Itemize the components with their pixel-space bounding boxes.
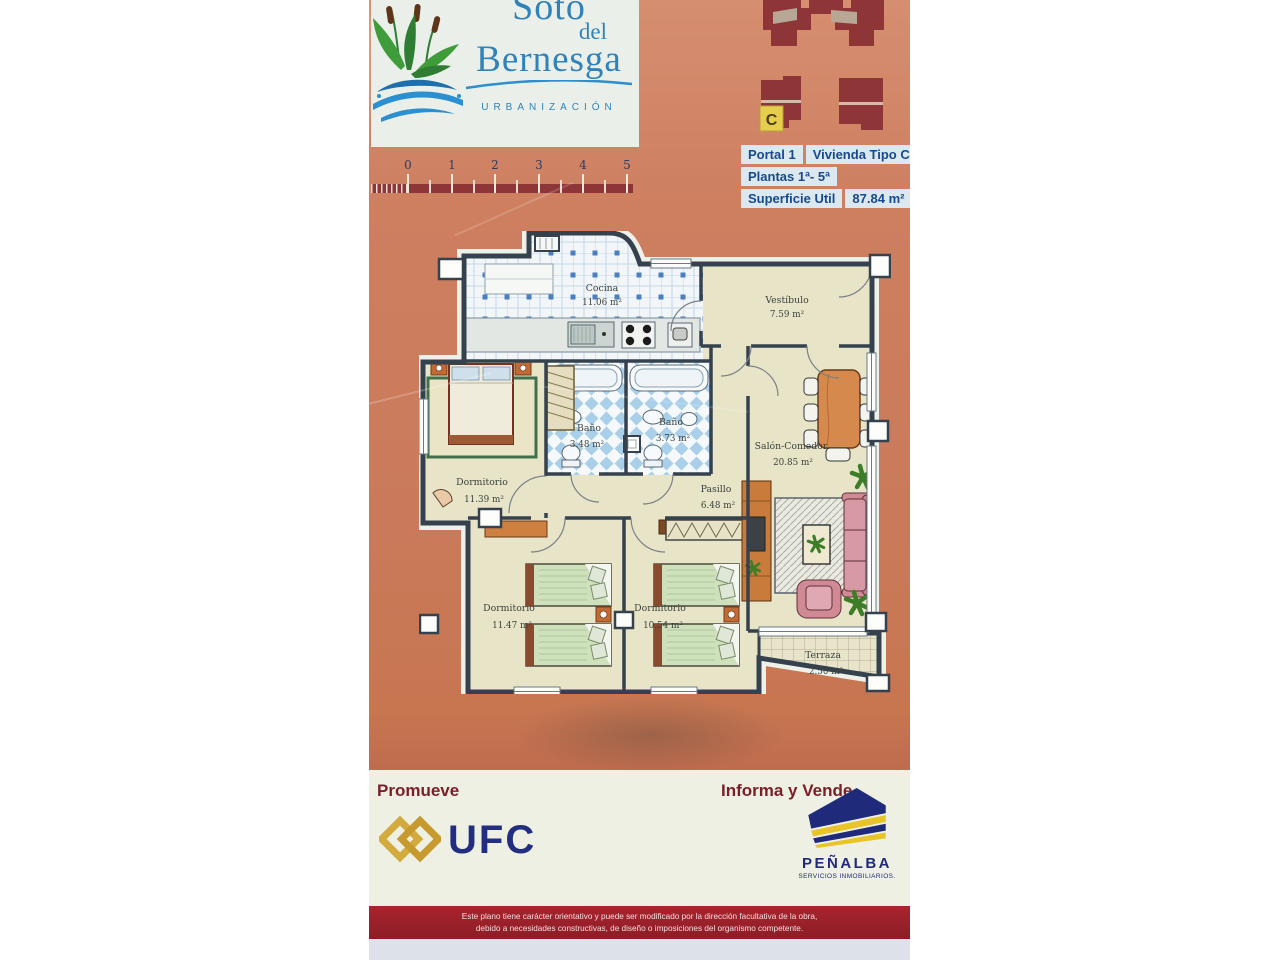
block-gap — [839, 102, 883, 105]
logo-text: Soto del Bernesga URBANIZACIÓN — [463, 0, 635, 113]
brochure-photo: Soto del Bernesga URBANIZACIÓN C Portal … — [369, 0, 910, 960]
ufc-diamonds-icon — [379, 812, 441, 868]
room-label: Dormitorio — [483, 603, 535, 614]
superficie-label-chip: Superficie Util — [741, 189, 842, 208]
scale-tick-3: 3 — [532, 158, 546, 172]
room-area: 6.48 m² — [701, 501, 735, 511]
room-label: Dormitorio — [456, 477, 508, 488]
room-area: 11.47 m² — [492, 621, 532, 631]
promueve-label: Promueve — [377, 781, 459, 801]
room-area: 2.50 m² — [809, 667, 843, 677]
room-area: 11.06 m² — [582, 298, 622, 308]
scale-bar: 0 1 2 3 4 5 — [371, 158, 633, 202]
room-label: Cocina — [586, 283, 619, 294]
scale-bar-subdivisions — [371, 184, 407, 193]
block-gap — [761, 100, 801, 103]
room-area: 11.39 m² — [464, 495, 504, 505]
room-label: Dormitorio — [634, 603, 686, 614]
logo-box: Soto del Bernesga URBANIZACIÓN — [371, 0, 639, 147]
room-label: Pasillo — [701, 484, 732, 495]
vivienda-chip: Vivienda Tipo C — [806, 145, 910, 164]
room-area: 7.59 m² — [770, 310, 804, 320]
hall-closet — [666, 520, 744, 540]
plantas-chip: Plantas 1ª- 5ª — [741, 167, 837, 186]
scale-tick-2: 2 — [488, 158, 502, 172]
room-area: 3.73 m² — [656, 434, 690, 444]
disclaimer-line2: debido a necesidades constructivas, de d… — [369, 923, 910, 935]
seller-name: PEÑALBA — [785, 855, 909, 872]
room-label: Vestíbulo — [764, 295, 809, 306]
logo-subtitle: URBANIZACIÓN — [463, 103, 635, 113]
unit-marker-label: C — [766, 112, 778, 129]
scale-tick-1: 1 — [445, 158, 459, 172]
seller-subtitle: SERVICIOS INMOBILIARIOS. — [785, 873, 909, 880]
portal-chip: Portal 1 — [741, 145, 803, 164]
scale-bar-line — [371, 184, 633, 193]
room-label: Baño — [659, 417, 683, 428]
floor-plan: Cocina 11.06 m² Vestíbulo 7.59 m² Baño 3… — [419, 231, 891, 694]
penalba-building-icon — [804, 788, 890, 848]
room-label: Salón-Comedor — [755, 441, 828, 452]
logo-line3: Bernesga — [463, 41, 635, 78]
room-area: 3.48 m² — [570, 440, 604, 450]
disclaimer-band: Este plano tiene carácter orientativo y … — [369, 906, 910, 939]
promoter-name: UFC — [448, 818, 536, 863]
logo-swoosh — [464, 80, 634, 90]
scale-tick-4: 4 — [576, 158, 590, 172]
superficie-value-chip: 87.84 m² — [845, 189, 910, 208]
courtyard-shade — [831, 10, 857, 24]
scale-tick-0: 0 — [401, 158, 415, 172]
disclaimer-line1: Este plano tiene carácter orientativo y … — [369, 911, 910, 923]
room-area: 20.85 m² — [773, 458, 813, 468]
site-plan: C — [731, 0, 910, 140]
reeds-illustration — [371, 0, 466, 140]
footer-band: Promueve UFC Informa y Vende PEÑALBA SER… — [369, 770, 910, 906]
room-label: Terraza — [805, 650, 841, 661]
page-bottom-edge — [369, 939, 910, 960]
ufc-logo: UFC — [379, 812, 536, 868]
info-panel: Portal 1 Vivienda Tipo C Plantas 1ª- 5ª … — [741, 145, 910, 208]
room-label: Baño — [577, 423, 601, 434]
penalba-logo: PEÑALBA SERVICIOS INMOBILIARIOS. — [785, 788, 909, 880]
scale-tick-5: 5 — [620, 158, 634, 172]
building-block-top — [763, 0, 884, 46]
room-area: 10.54 m² — [643, 621, 683, 631]
